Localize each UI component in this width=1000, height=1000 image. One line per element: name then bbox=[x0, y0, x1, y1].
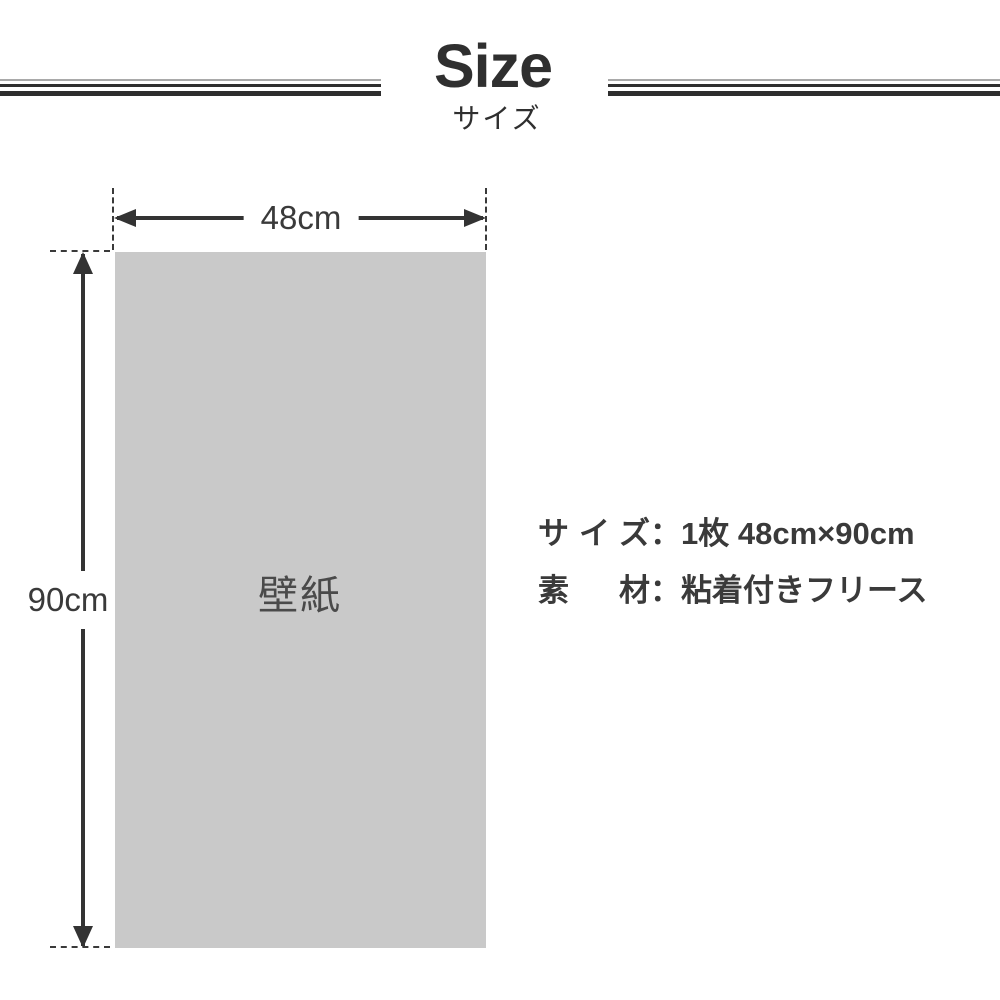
spec-size-label: サイズ bbox=[538, 505, 650, 562]
height-arrowhead-top-icon bbox=[73, 252, 93, 274]
header-rule-right-thin bbox=[608, 79, 1000, 81]
header-rule-right-mid bbox=[608, 84, 1000, 87]
header-rule-left bbox=[0, 79, 381, 96]
width-dimension-label: 48cm bbox=[244, 197, 359, 239]
width-arrowhead-left-icon bbox=[114, 209, 136, 227]
header-rule-right bbox=[608, 79, 1000, 96]
header-rule-right-thick bbox=[608, 91, 1000, 96]
size-infographic: Size サイズ 壁紙 48cm 90cm サイズ：1枚 48cm×90cm 素… bbox=[0, 0, 1000, 1000]
spec-size-value: ：1枚 48cm×90cm bbox=[650, 516, 915, 551]
spec-material-value: ：粘着付きフリース bbox=[650, 573, 927, 608]
section-subtitle: サイズ bbox=[452, 102, 541, 136]
header-rule-left-mid bbox=[0, 84, 381, 87]
height-arrowhead-bottom-icon bbox=[73, 926, 93, 948]
section-title: Size bbox=[434, 36, 552, 97]
spec-list: サイズ：1枚 48cm×90cm 素材：粘着付きフリース bbox=[538, 505, 927, 619]
header-rule-left-thick bbox=[0, 91, 381, 96]
spec-material-label: 素材 bbox=[538, 562, 650, 619]
spec-row-material: 素材：粘着付きフリース bbox=[538, 562, 927, 619]
wallpaper-panel-label: 壁紙 bbox=[258, 563, 342, 621]
width-arrowhead-right-icon bbox=[464, 209, 486, 227]
spec-row-size: サイズ：1枚 48cm×90cm bbox=[538, 505, 927, 562]
header-rule-left-thin bbox=[0, 79, 381, 81]
height-dimension-label: 90cm bbox=[26, 571, 111, 629]
